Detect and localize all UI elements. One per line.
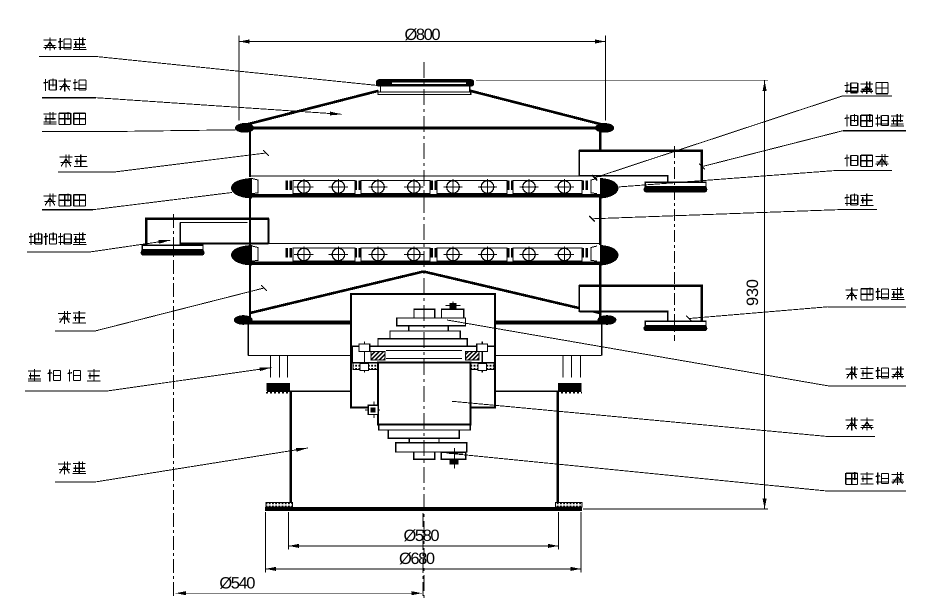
svg-text:930: 930 (744, 279, 762, 306)
svg-text:Ø680: Ø680 (399, 550, 435, 568)
svg-text:Ø540: Ø540 (219, 575, 255, 593)
svg-text:Ø580: Ø580 (404, 527, 440, 545)
svg-text:Ø800: Ø800 (405, 26, 441, 44)
